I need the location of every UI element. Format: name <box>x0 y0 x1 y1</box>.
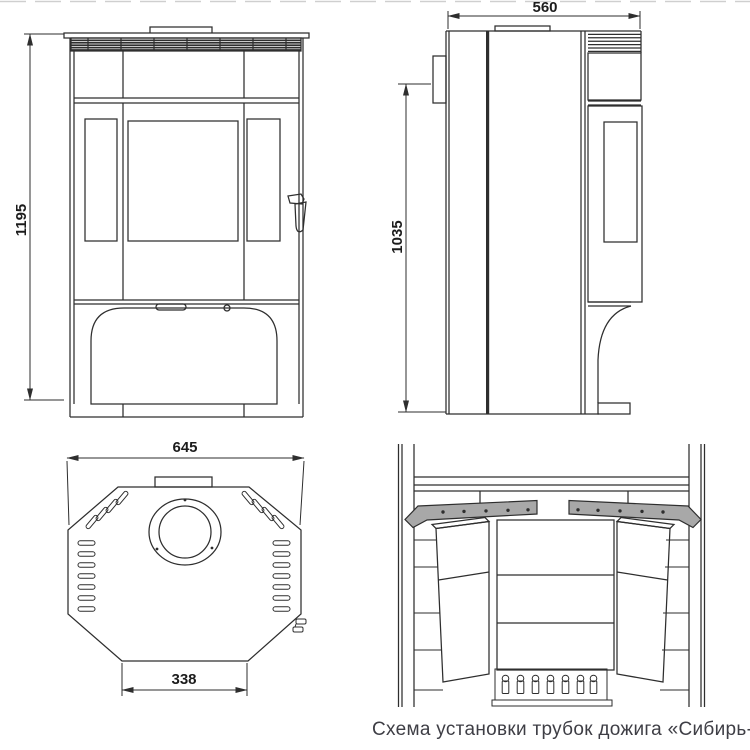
side-depth-label: 560 <box>532 0 557 16</box>
caption: Схема установки трубок дожига «Сибирь-12… <box>372 719 750 740</box>
front-left-side-glass <box>85 119 117 241</box>
side-glass-window <box>604 122 637 242</box>
side-panel <box>588 106 642 302</box>
front-ash-door-latch <box>156 304 186 310</box>
front-door-glass <box>128 121 238 241</box>
front-body <box>64 27 309 417</box>
grate-base <box>492 700 612 706</box>
top-flue-opening <box>149 499 221 565</box>
front-view: 1195 <box>13 27 309 417</box>
top-base-width-label: 338 <box>171 671 196 688</box>
side-top-plate-tab <box>495 26 550 31</box>
side-body <box>433 26 599 414</box>
firebrick-panel-back <box>497 520 614 670</box>
grate-slots <box>502 675 597 693</box>
stove-technical-drawing-page: 1195 <box>0 0 750 750</box>
side-body-edge-thick <box>486 31 489 414</box>
top-side-vents-right <box>273 541 290 611</box>
front-mid-section <box>74 103 299 304</box>
firebrick-panel-left <box>432 518 489 683</box>
side-view: 560 1035 <box>389 0 642 414</box>
front-ash-door <box>91 304 277 404</box>
front-height-label: 1195 <box>13 204 30 237</box>
side-rear-flue-outlet <box>433 56 446 103</box>
side-front-grille <box>585 31 641 53</box>
top-dimension-width <box>67 458 304 525</box>
firebrick-panel-right <box>617 518 674 683</box>
side-foot <box>598 403 630 414</box>
front-dimension-height <box>24 34 64 400</box>
top-flue-collar-tab <box>155 477 212 487</box>
top-body-outline <box>68 477 301 661</box>
top-corner-vents-right <box>241 490 285 529</box>
interior-left-wall <box>399 444 444 707</box>
side-flue-height-label: 1035 <box>389 220 406 253</box>
interior-top-lintel <box>414 477 689 503</box>
top-handle-clip <box>293 619 306 632</box>
top-width-label: 645 <box>172 439 197 456</box>
side-upper-panel <box>588 53 641 100</box>
front-right-side-glass <box>247 119 280 241</box>
top-side-vents-left <box>78 541 95 611</box>
interior-left-wall-joints <box>414 540 443 690</box>
front-top-grille <box>71 38 301 51</box>
interior-view <box>399 444 705 707</box>
side-front-panel <box>588 53 642 414</box>
interior-right-wall <box>660 444 705 707</box>
front-upper-panel-row <box>74 51 299 103</box>
grate <box>492 669 612 706</box>
stove-technical-drawing: 1195 <box>0 0 750 750</box>
top-view: 645 <box>67 439 306 696</box>
side-pedestal-curve <box>598 306 631 403</box>
interior-right-wall-joints <box>660 540 689 690</box>
